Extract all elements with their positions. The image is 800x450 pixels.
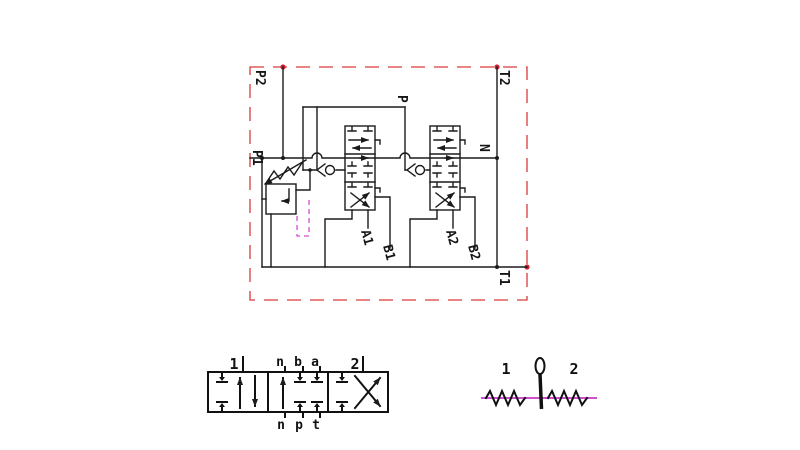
relief-valve-body [266,184,296,214]
lever-label-1: 1 [501,360,510,378]
relief-valve-feed-line [296,170,310,190]
port-label-p2: P2 [252,70,267,86]
spool-label-n-top: n [276,355,284,370]
check-valve-1-seat [317,164,325,176]
lever-springs-symbol: 1 2 [481,358,597,409]
spool-label-pos1: 1 [229,355,238,373]
valve2-pos1-stub [460,140,465,144]
valve2-pos2-stub [460,188,465,192]
lever-stick [540,374,542,409]
spool-label-b: b [294,355,302,370]
junction-dot [495,265,499,269]
relief-valve-adjust-arrow [265,160,306,184]
junction-dot-n [495,156,499,160]
spool-label-a: a [311,355,319,370]
valve1-neutral-blocked-ports [348,162,372,177]
port-label-p1: P1 [249,150,264,166]
valve2-pos2-blocked-ports [433,183,457,187]
valve2-port-b2-line [460,197,475,248]
port-label-n: N [476,144,491,152]
valve2-neutral-blocked-ports [433,162,457,177]
check-valve-1-ball [326,166,335,175]
work-port-label-a1: A1 [357,228,376,247]
spool-positions-symbol: 1 n b a 2 n p t [208,355,388,433]
valve1-tank-return-line [325,210,352,267]
spool-symbol-label-ticks [243,357,363,417]
port-label-p: P [394,95,409,103]
valve1-body [345,126,375,210]
spool-label-pos2: 2 [350,355,359,373]
work-port-label-b2: B2 [464,243,483,262]
check-valve-2-seat [407,164,415,176]
valve2-pos1-blocked-ports [433,127,457,131]
hydraulic-schematic: P2 P1 T2 N T1 P A1 B1 A2 B2 1 n b a [0,0,800,450]
valve1-pos1-blocked-ports [348,127,372,131]
valve1-port-b1-line [375,197,390,248]
check-valve-2 [405,164,430,176]
pilot-line [297,196,309,236]
check-valve-2-ball [416,166,425,175]
valve1-pos1-stub [375,140,380,144]
junction-dot [308,168,312,172]
port-label-t2: T2 [496,70,511,86]
port-labels: P2 P1 T2 N T1 P A1 B1 A2 B2 [249,70,511,286]
spool-box3-cross-arm-b [355,378,380,408]
spool-label-n-bottom: n [277,418,285,433]
hydraulic-valve-schematic-page: P2 P1 T2 N T1 P A1 B1 A2 B2 1 n b a [0,0,800,450]
work-port-label-a2: A2 [442,228,461,247]
relief-valve-flow-arrow [282,189,289,201]
pressure-relief-valve [262,160,312,267]
spool-label-p: p [295,418,303,433]
valve2-body [430,126,460,210]
spool-label-t: t [312,418,320,433]
port-label-t1: T1 [496,270,511,286]
circuit-boundary [250,64,530,300]
valve1-pos2-stub [375,188,380,192]
lever-label-2: 2 [569,360,578,378]
valve1-pos2-blocked-ports [348,183,372,187]
junction-dot [281,156,285,160]
valve2-tank-return-line [410,210,437,267]
spool-box3-cross-arm-a [355,376,380,406]
work-port-label-b1: B1 [379,243,398,262]
lever-knob [536,358,545,374]
